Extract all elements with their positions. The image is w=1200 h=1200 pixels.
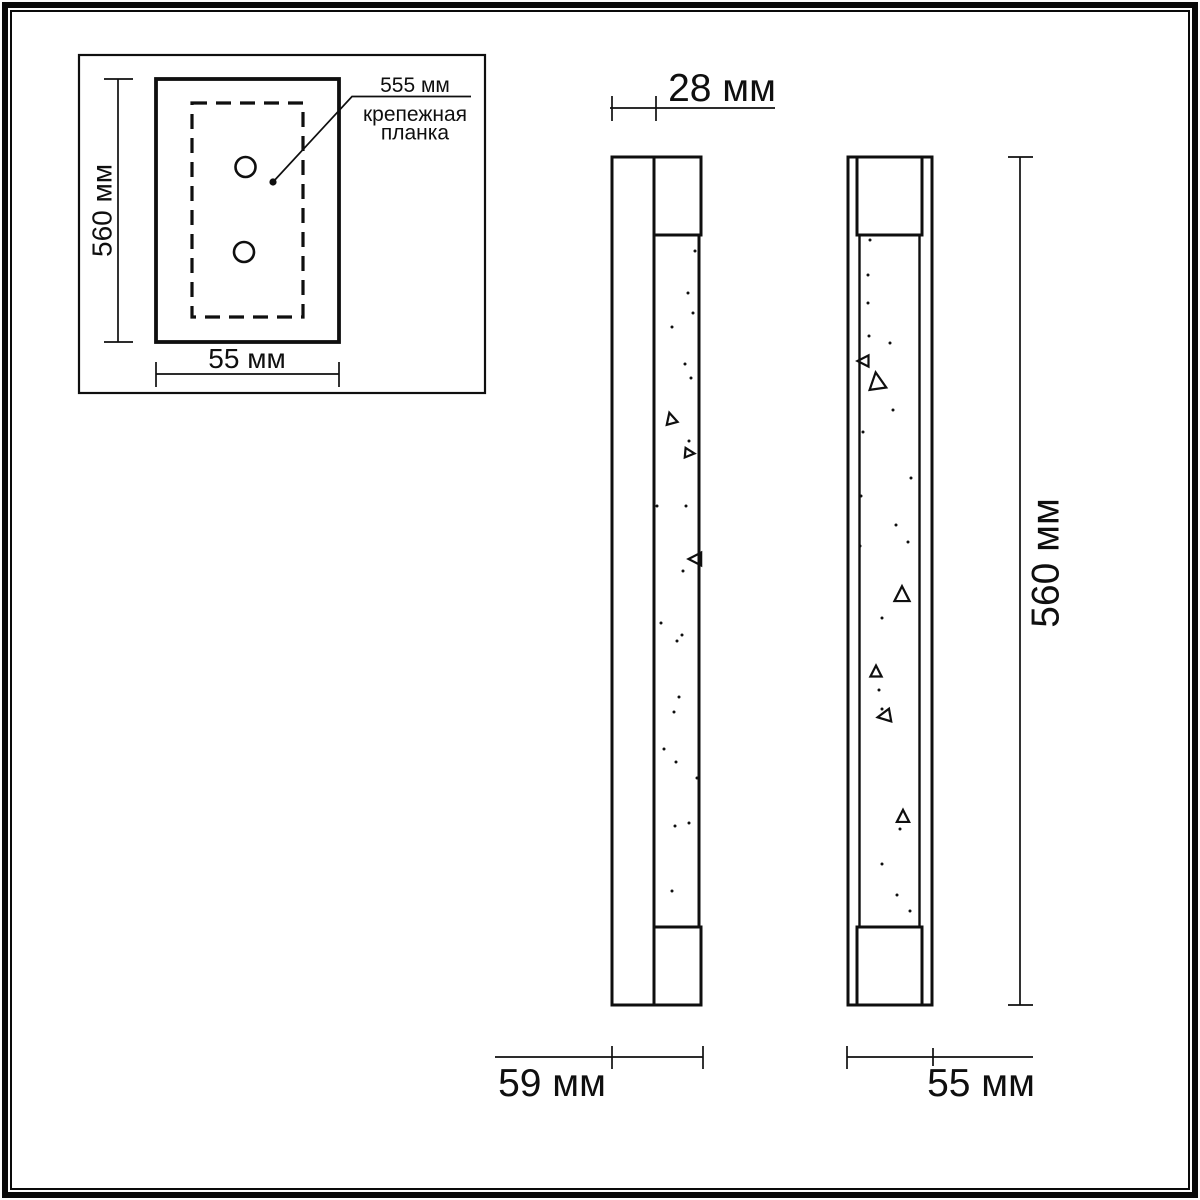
side-view-width-label: 59 мм	[498, 1062, 606, 1105]
sparkle-dot	[907, 541, 910, 544]
front-view-width-dimension: 55 мм	[847, 1046, 1035, 1105]
mounting-plate-detail-inset: 555 мм крепежная планка 560 мм 55 мм	[79, 55, 485, 393]
side-view-depth-dimension: 28 мм	[610, 67, 776, 121]
sparkle-dot	[859, 545, 862, 548]
sparkle-dot	[681, 634, 684, 637]
sparkle-dot	[682, 570, 685, 573]
sparkle-dot	[867, 302, 870, 305]
backplate-outline	[156, 79, 339, 342]
sparkle-dot	[663, 748, 666, 751]
front-view-height-dimension: 560 мм	[1008, 157, 1068, 1005]
sparkle-dot	[909, 910, 912, 913]
sparkle-dot	[910, 477, 913, 480]
lamp-front-view: 560 мм 55 мм	[847, 157, 1068, 1105]
sparkle-dot	[896, 894, 899, 897]
sparkle-dot	[881, 617, 884, 620]
sparkle-dot	[671, 890, 674, 893]
sparkle-dot	[675, 761, 678, 764]
front-view-height-label: 560 мм	[1025, 498, 1068, 628]
sparkle-dot	[678, 696, 681, 699]
sparkle-dot	[868, 335, 871, 338]
inset-height-label: 560 мм	[87, 164, 118, 257]
sparkle-dot	[867, 274, 870, 277]
sparkle-dot	[869, 239, 872, 242]
lamp-side-view: 28 мм 59 мм	[495, 67, 776, 1105]
sparkle-dot	[881, 863, 884, 866]
sparkle-dot	[688, 440, 691, 443]
front-view-top-cap	[857, 157, 922, 235]
sparkle-dot	[688, 822, 691, 825]
label-mounting-bar-line2: планка	[381, 122, 450, 145]
side-view-glass-tube	[654, 235, 699, 927]
label-plate-length: 555 мм	[380, 74, 450, 97]
sparkle-dot	[692, 312, 695, 315]
front-view-width-label: 55 мм	[927, 1062, 1035, 1105]
sparkle-dot	[660, 622, 663, 625]
sparkle-dot	[687, 292, 690, 295]
sparkle-dot	[696, 777, 699, 780]
sparkle-dot	[694, 250, 697, 253]
sparkle-dot	[685, 505, 688, 508]
side-view-wall-plate	[612, 157, 654, 1005]
sparkle-dot	[673, 711, 676, 714]
sparkle-dot	[895, 524, 898, 527]
sparkle-dot	[899, 828, 902, 831]
sparkle-dot	[671, 326, 674, 329]
sparkle-dot	[690, 377, 693, 380]
sparkle-dot	[862, 431, 865, 434]
inset-width-label: 55 мм	[208, 343, 285, 374]
front-view-bottom-cap	[857, 927, 922, 1005]
technical-drawing: 555 мм крепежная планка 560 мм 55 мм	[0, 0, 1200, 1200]
sparkle-dot	[860, 495, 863, 498]
side-view-top-cap	[654, 157, 701, 235]
sparkle-dot	[674, 825, 677, 828]
sparkle-dot	[684, 363, 687, 366]
sparkle-dot	[656, 505, 659, 508]
sparkle-dot	[878, 689, 881, 692]
sparkle-dot	[892, 409, 895, 412]
side-view-bottom-cap	[654, 927, 701, 1005]
lamp-dimension-drawing-page: 555 мм крепежная планка 560 мм 55 мм	[0, 0, 1200, 1200]
sparkle-dot	[881, 708, 884, 711]
sparkle-dot	[676, 640, 679, 643]
side-view-width-dimension: 59 мм	[495, 1046, 703, 1105]
side-view-depth-label: 28 мм	[668, 67, 776, 110]
sparkle-dot	[889, 342, 892, 345]
